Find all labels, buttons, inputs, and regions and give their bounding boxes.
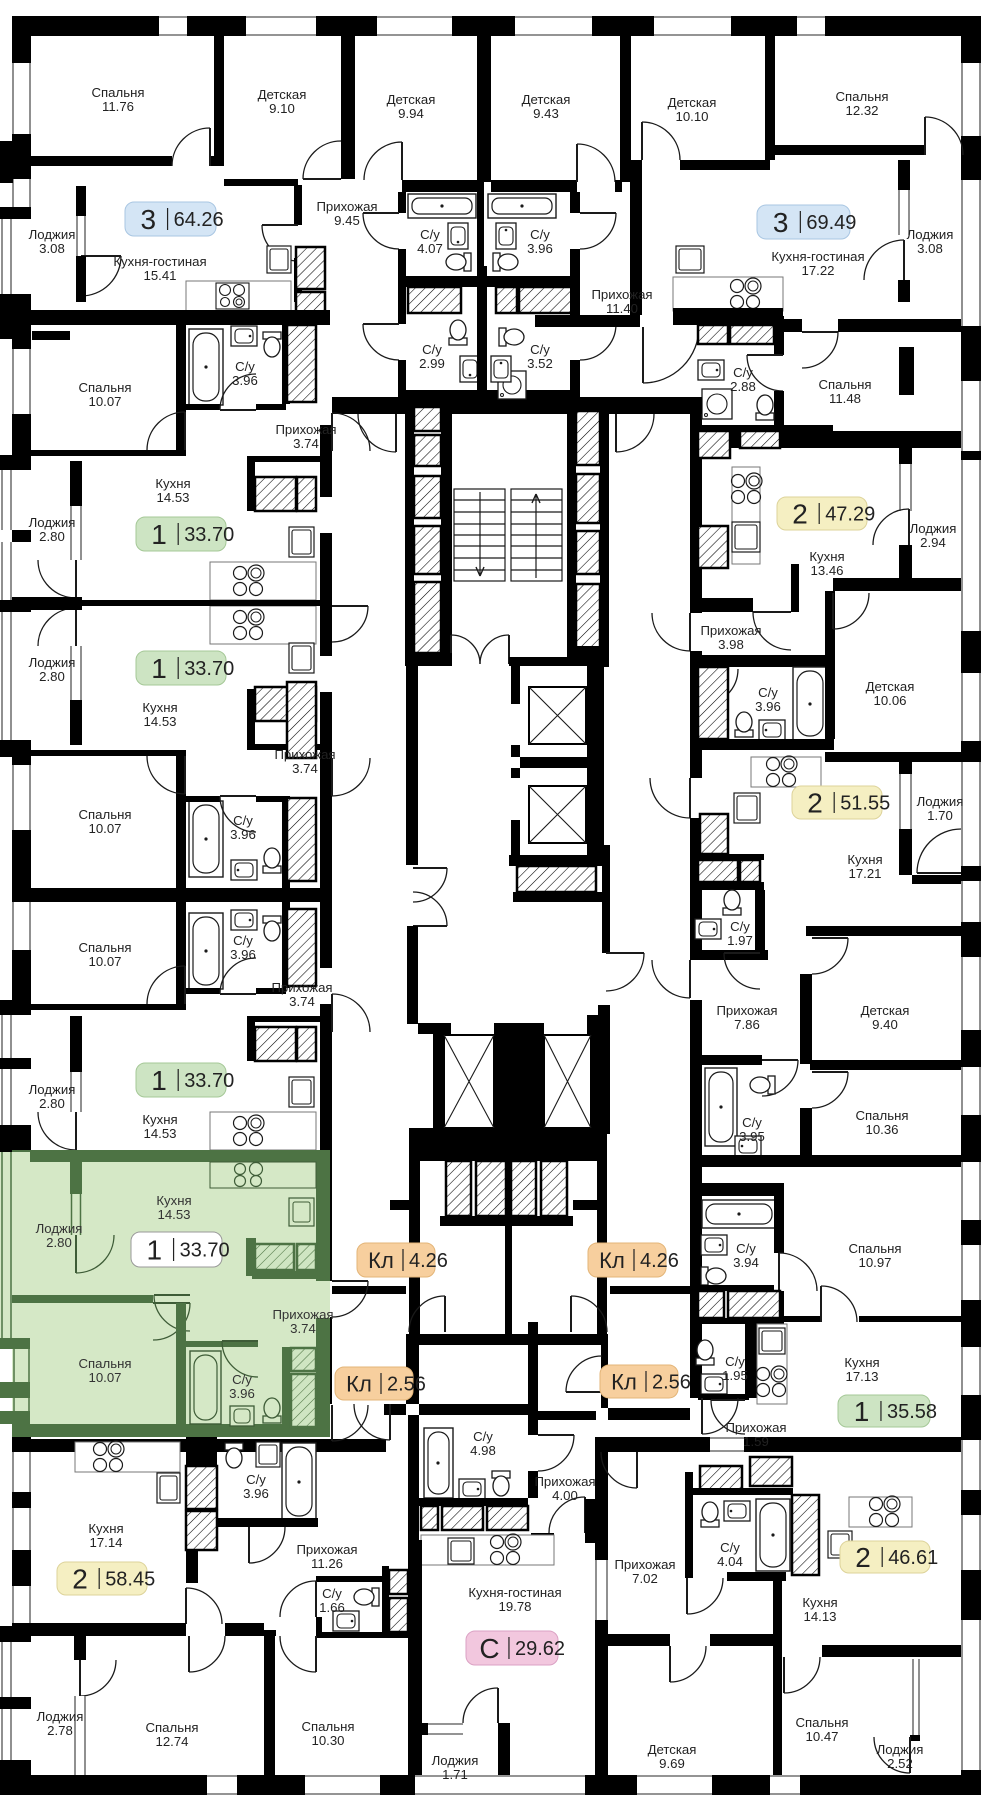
- svg-text:Спальня: Спальня: [92, 85, 145, 100]
- svg-text:Спальня: Спальня: [79, 807, 132, 822]
- svg-text:10.07: 10.07: [88, 821, 121, 836]
- svg-text:С/у: С/у: [758, 685, 778, 700]
- svg-text:2.78: 2.78: [47, 1723, 73, 1738]
- svg-text:33.70: 33.70: [184, 524, 234, 546]
- svg-text:С/у: С/у: [733, 365, 753, 380]
- svg-text:Лоджия: Лоджия: [37, 1709, 84, 1724]
- svg-text:3.08: 3.08: [917, 241, 943, 256]
- svg-text:3.96: 3.96: [229, 1386, 255, 1401]
- svg-text:Кухня: Кухня: [156, 1193, 191, 1208]
- svg-text:Спальня: Спальня: [836, 89, 889, 104]
- svg-text:11.26: 11.26: [311, 1556, 343, 1571]
- svg-text:10.06: 10.06: [873, 693, 906, 708]
- svg-text:3.96: 3.96: [243, 1486, 269, 1501]
- svg-text:3: 3: [141, 204, 157, 235]
- svg-text:11.40: 11.40: [606, 301, 638, 316]
- svg-text:Кл: Кл: [611, 1370, 637, 1395]
- svg-text:2.99: 2.99: [419, 356, 445, 371]
- svg-text:Детская: Детская: [668, 95, 717, 110]
- svg-text:Спальня: Спальня: [79, 940, 132, 955]
- svg-text:1.97: 1.97: [727, 933, 753, 948]
- svg-text:Кухня-гостиная: Кухня-гостиная: [113, 254, 206, 269]
- svg-text:13.46: 13.46: [810, 563, 843, 578]
- svg-text:Кл: Кл: [346, 1372, 372, 1397]
- svg-text:3.98: 3.98: [718, 637, 744, 652]
- svg-text:33.70: 33.70: [184, 658, 234, 680]
- svg-text:Спальня: Спальня: [856, 1108, 909, 1123]
- svg-text:3.96: 3.96: [232, 373, 258, 388]
- svg-text:Прихожая: Прихожая: [716, 1003, 777, 1018]
- svg-text:С/у: С/у: [730, 919, 750, 934]
- svg-text:17.13: 17.13: [845, 1369, 878, 1384]
- svg-text:9.69: 9.69: [659, 1756, 685, 1771]
- svg-text:1.70: 1.70: [927, 808, 953, 823]
- svg-text:С/у: С/у: [233, 933, 253, 948]
- svg-text:С/у: С/у: [233, 813, 253, 828]
- svg-text:Детская: Детская: [866, 679, 915, 694]
- svg-text:2: 2: [807, 788, 823, 819]
- svg-text:2: 2: [792, 499, 808, 530]
- svg-text:1: 1: [151, 653, 167, 684]
- svg-text:10.36: 10.36: [865, 1122, 898, 1137]
- svg-text:Лоджия: Лоджия: [36, 1221, 83, 1236]
- svg-text:Прихожая: Прихожая: [591, 287, 652, 302]
- svg-text:3.74: 3.74: [293, 436, 319, 451]
- svg-text:Прихожая: Прихожая: [725, 1420, 786, 1435]
- svg-text:3.96: 3.96: [230, 947, 256, 962]
- svg-text:4.04: 4.04: [717, 1554, 743, 1569]
- svg-text:9.45: 9.45: [334, 213, 360, 228]
- svg-text:2.56: 2.56: [387, 1374, 426, 1396]
- svg-text:С/у: С/у: [422, 342, 442, 357]
- svg-text:51.55: 51.55: [840, 793, 890, 815]
- svg-text:7.02: 7.02: [632, 1571, 658, 1586]
- svg-text:9.43: 9.43: [533, 106, 559, 121]
- svg-text:Кухня: Кухня: [802, 1595, 837, 1610]
- svg-text:3.74: 3.74: [289, 994, 315, 1009]
- svg-text:Лоджия: Лоджия: [29, 655, 76, 670]
- svg-text:Спальня: Спальня: [796, 1715, 849, 1730]
- svg-text:33.70: 33.70: [180, 1240, 230, 1262]
- svg-text:Детская: Детская: [648, 1742, 697, 1757]
- svg-text:2: 2: [855, 1542, 871, 1573]
- svg-text:Кухня: Кухня: [809, 549, 844, 564]
- svg-text:Лоджия: Лоджия: [432, 1753, 479, 1768]
- svg-text:Прихожая: Прихожая: [534, 1474, 595, 1489]
- svg-text:58.45: 58.45: [105, 1569, 155, 1591]
- svg-text:С: С: [479, 1633, 499, 1664]
- svg-text:С/у: С/у: [742, 1115, 762, 1130]
- svg-text:3.74: 3.74: [292, 761, 318, 776]
- svg-text:Кухня-гостиная: Кухня-гостиная: [771, 249, 864, 264]
- svg-text:Прихожая: Прихожая: [296, 1542, 357, 1557]
- svg-text:10.07: 10.07: [88, 394, 121, 409]
- svg-text:С/у: С/у: [530, 342, 550, 357]
- svg-text:9.94: 9.94: [398, 106, 424, 121]
- svg-text:4.00: 4.00: [552, 1488, 578, 1503]
- svg-text:3.52: 3.52: [527, 356, 553, 371]
- svg-text:Прихожая: Прихожая: [271, 980, 332, 995]
- svg-text:10.47: 10.47: [805, 1729, 838, 1744]
- svg-text:Лоджия: Лоджия: [29, 227, 76, 242]
- svg-text:46.61: 46.61: [888, 1547, 938, 1569]
- svg-text:Лоджия: Лоджия: [907, 227, 954, 242]
- svg-text:Прихожая: Прихожая: [275, 422, 336, 437]
- svg-text:С/у: С/у: [725, 1354, 745, 1369]
- svg-text:Лоджия: Лоджия: [29, 515, 76, 530]
- svg-text:Кухня: Кухня: [142, 1112, 177, 1127]
- svg-text:Прихожая: Прихожая: [700, 623, 761, 638]
- svg-text:3.94: 3.94: [733, 1255, 759, 1270]
- svg-text:Кухня: Кухня: [155, 476, 190, 491]
- svg-text:10.07: 10.07: [88, 954, 121, 969]
- svg-text:Лоджия: Лоджия: [917, 794, 964, 809]
- svg-text:2.52: 2.52: [887, 1756, 913, 1771]
- svg-text:14.53: 14.53: [157, 1207, 190, 1222]
- svg-text:С/у: С/у: [235, 359, 255, 374]
- svg-text:15.41: 15.41: [143, 268, 176, 283]
- svg-text:47.29: 47.29: [825, 504, 875, 526]
- svg-text:1.66: 1.66: [319, 1600, 345, 1615]
- svg-text:4.98: 4.98: [470, 1443, 496, 1458]
- svg-text:35.58: 35.58: [887, 1401, 937, 1423]
- svg-text:12.74: 12.74: [155, 1734, 188, 1749]
- svg-text:10.30: 10.30: [311, 1733, 344, 1748]
- svg-text:7.86: 7.86: [734, 1017, 760, 1032]
- svg-text:14.53: 14.53: [143, 714, 176, 729]
- svg-text:14.53: 14.53: [143, 1126, 176, 1141]
- svg-text:3.08: 3.08: [39, 241, 65, 256]
- svg-text:Детская: Детская: [522, 92, 571, 107]
- svg-text:С/у: С/у: [736, 1241, 756, 1256]
- svg-text:Прихожая: Прихожая: [316, 199, 377, 214]
- svg-text:33.70: 33.70: [184, 1070, 234, 1092]
- svg-text:Лоджия: Лоджия: [877, 1742, 924, 1757]
- svg-text:2.80: 2.80: [46, 1235, 72, 1250]
- svg-text:Спальня: Спальня: [79, 1356, 132, 1371]
- svg-text:Спальня: Спальня: [849, 1241, 902, 1256]
- svg-text:14.13: 14.13: [803, 1609, 836, 1624]
- svg-text:Кухня: Кухня: [88, 1521, 123, 1536]
- svg-text:4.26: 4.26: [640, 1250, 679, 1272]
- svg-text:2.80: 2.80: [39, 669, 65, 684]
- svg-text:Кл: Кл: [599, 1248, 625, 1273]
- svg-text:С/у: С/у: [473, 1429, 493, 1444]
- svg-text:Прихожая: Прихожая: [274, 747, 335, 762]
- svg-text:11.76: 11.76: [102, 99, 134, 114]
- svg-text:Кухня: Кухня: [847, 852, 882, 867]
- svg-text:С/у: С/у: [420, 227, 440, 242]
- svg-text:С/у: С/у: [720, 1540, 740, 1555]
- svg-text:Прихожая: Прихожая: [614, 1557, 675, 1572]
- svg-text:19.78: 19.78: [498, 1599, 531, 1614]
- svg-text:1.59: 1.59: [743, 1434, 769, 1449]
- svg-text:10.10: 10.10: [675, 109, 708, 124]
- svg-text:С/у: С/у: [232, 1372, 252, 1387]
- svg-text:2.80: 2.80: [39, 1096, 65, 1111]
- svg-text:2.88: 2.88: [730, 379, 756, 394]
- svg-text:Спальня: Спальня: [302, 1719, 355, 1734]
- svg-text:3.96: 3.96: [755, 699, 781, 714]
- svg-text:2: 2: [72, 1564, 88, 1595]
- svg-text:С/у: С/у: [246, 1472, 266, 1487]
- svg-text:4.26: 4.26: [409, 1250, 448, 1272]
- svg-text:2.94: 2.94: [920, 535, 946, 550]
- svg-text:3.95: 3.95: [739, 1129, 765, 1144]
- svg-text:64.26: 64.26: [174, 209, 224, 231]
- svg-text:Кухня: Кухня: [142, 700, 177, 715]
- svg-text:Детская: Детская: [861, 1003, 910, 1018]
- svg-text:1: 1: [151, 519, 167, 550]
- svg-text:Детская: Детская: [387, 92, 436, 107]
- svg-text:14.53: 14.53: [156, 490, 189, 505]
- svg-text:17.21: 17.21: [848, 866, 881, 881]
- svg-text:10.97: 10.97: [858, 1255, 891, 1270]
- svg-text:Детская: Детская: [258, 87, 307, 102]
- svg-text:4.07: 4.07: [417, 241, 443, 256]
- svg-text:1.71: 1.71: [442, 1767, 468, 1782]
- svg-text:Прихожая: Прихожая: [272, 1307, 333, 1322]
- svg-text:17.14: 17.14: [89, 1535, 122, 1550]
- svg-text:Спальня: Спальня: [819, 377, 872, 392]
- svg-text:Спальня: Спальня: [146, 1720, 199, 1735]
- svg-text:10.07: 10.07: [88, 1370, 121, 1385]
- svg-text:29.62: 29.62: [515, 1638, 565, 1660]
- svg-text:Кухня: Кухня: [844, 1355, 879, 1370]
- svg-text:3.96: 3.96: [230, 827, 256, 842]
- svg-text:2.56: 2.56: [652, 1372, 691, 1394]
- svg-text:Кл: Кл: [368, 1248, 394, 1273]
- svg-text:С/у: С/у: [322, 1586, 342, 1601]
- svg-text:3.74: 3.74: [290, 1321, 316, 1336]
- svg-text:Кухня-гостиная: Кухня-гостиная: [468, 1585, 561, 1600]
- svg-text:Спальня: Спальня: [79, 380, 132, 395]
- svg-text:69.49: 69.49: [806, 212, 856, 234]
- svg-text:1: 1: [854, 1396, 870, 1427]
- svg-text:9.40: 9.40: [872, 1017, 898, 1032]
- svg-text:3.96: 3.96: [527, 241, 553, 256]
- svg-text:Лоджия: Лоджия: [910, 521, 957, 536]
- svg-text:1: 1: [151, 1065, 167, 1096]
- svg-text:1.95: 1.95: [722, 1368, 748, 1383]
- svg-text:12.32: 12.32: [845, 103, 878, 118]
- svg-text:3: 3: [773, 207, 789, 238]
- svg-text:1: 1: [147, 1235, 163, 1266]
- svg-text:2.80: 2.80: [39, 529, 65, 544]
- svg-text:17.22: 17.22: [801, 263, 834, 278]
- svg-text:С/у: С/у: [530, 227, 550, 242]
- svg-text:Лоджия: Лоджия: [29, 1082, 76, 1097]
- svg-text:9.10: 9.10: [269, 101, 295, 116]
- svg-text:11.48: 11.48: [829, 391, 861, 406]
